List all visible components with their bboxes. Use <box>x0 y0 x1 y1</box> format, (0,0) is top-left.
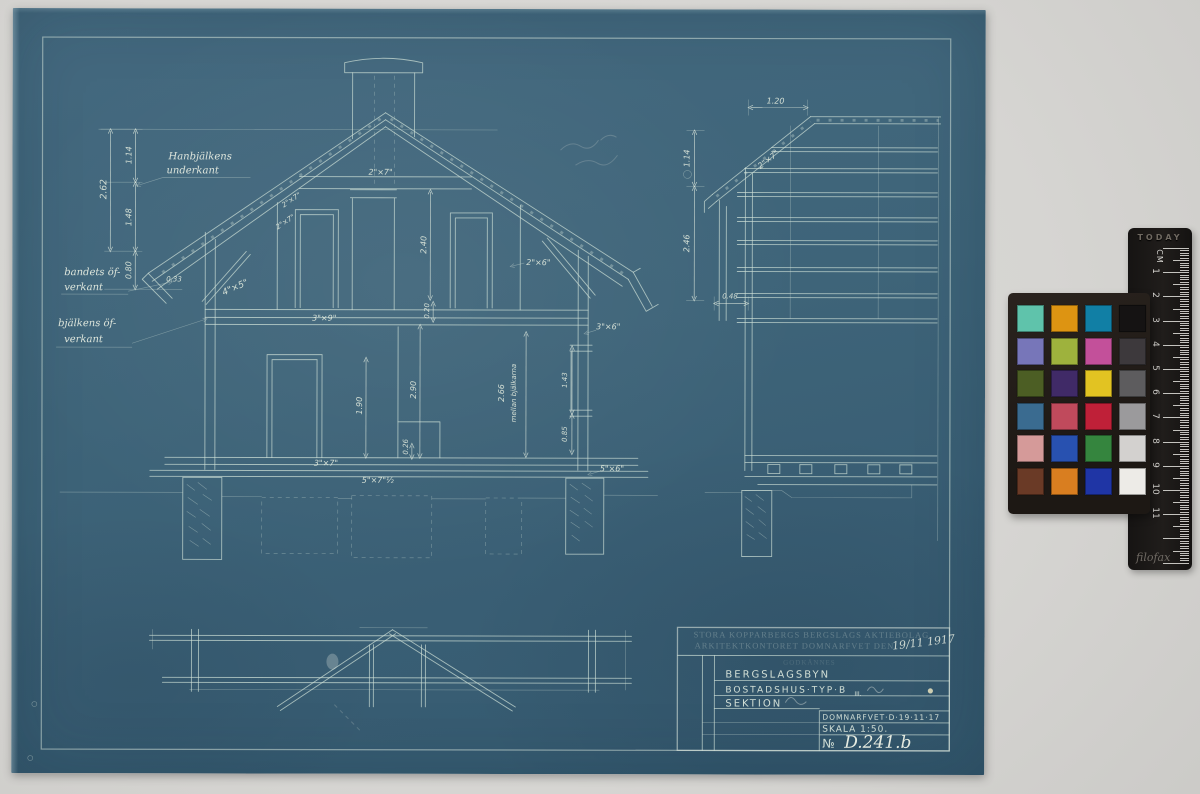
color-swatch <box>1051 468 1078 495</box>
ruler-tick <box>1163 272 1189 273</box>
title-building-sub: III. <box>854 691 861 698</box>
ruler-tick <box>1180 374 1189 375</box>
ruler-tick <box>1180 328 1189 329</box>
dim-120: 1.20 <box>767 97 785 106</box>
color-swatch <box>1051 305 1078 332</box>
ruler-tick <box>1163 393 1189 394</box>
ruler-tick <box>1163 296 1189 297</box>
ruler-tick <box>1180 330 1189 331</box>
color-swatch <box>1119 305 1146 332</box>
ruler-tick <box>1173 405 1189 406</box>
ruler-tick <box>1180 439 1189 440</box>
dim-262: 2.62 <box>99 179 109 199</box>
ruler-tick <box>1180 384 1189 385</box>
ruler-tick <box>1173 284 1189 285</box>
ruler-tick <box>1180 263 1189 264</box>
title-project: BERGSLAGSBYN <box>725 669 830 680</box>
ruler-tick <box>1173 502 1189 503</box>
ruler-number: 1 <box>1150 264 1160 278</box>
ruler-tick <box>1180 301 1189 302</box>
color-swatch <box>1119 468 1146 495</box>
ruler-tick <box>1180 354 1189 355</box>
ruler-script-logo: filofax <box>1136 551 1170 564</box>
ruler-tick <box>1180 500 1189 501</box>
ruler-number: 8 <box>1150 434 1160 448</box>
ruler-tick <box>1173 551 1189 552</box>
ruler-tick <box>1180 463 1189 464</box>
label-verkant-2: verkant <box>64 334 104 345</box>
ruler-tick <box>1180 400 1189 401</box>
ruler-tick <box>1180 529 1189 530</box>
ruler-tick <box>1180 313 1189 314</box>
ruler-tick <box>1180 475 1189 476</box>
ruler-tick <box>1180 497 1189 498</box>
dim-026: 0.26 <box>402 438 410 454</box>
dim-5x7: 5"×7"½ <box>362 476 394 485</box>
ruler-tick <box>1180 318 1189 319</box>
ruler-tick <box>1180 413 1189 414</box>
ruler-tick <box>1180 371 1189 372</box>
title-no-sign: № <box>822 737 836 751</box>
ruler-tick <box>1163 490 1189 491</box>
ruler-tick <box>1180 415 1189 416</box>
ruler-tick <box>1173 260 1189 261</box>
ruler-tick <box>1180 427 1189 428</box>
ruler-tick <box>1180 347 1189 348</box>
title-drawing-number: D.241.b <box>843 733 911 753</box>
ruler-tick <box>1180 483 1189 484</box>
ruler-tick <box>1180 396 1189 397</box>
dim-114-right: 1.14 <box>682 149 691 167</box>
ruler-tick <box>1163 248 1189 249</box>
color-swatch <box>1051 403 1078 430</box>
ruler-tick <box>1163 345 1189 346</box>
ruler-number: 2 <box>1150 288 1160 302</box>
ruler-tick <box>1173 526 1189 527</box>
ruler-tick <box>1180 388 1189 389</box>
ruler-tick <box>1180 408 1189 409</box>
ruler-tick <box>1180 524 1189 525</box>
label-bandets: bandets öf- <box>64 267 121 278</box>
ruler-tick <box>1180 485 1189 486</box>
ruler-tick <box>1173 381 1189 382</box>
ruler-tick <box>1180 461 1189 462</box>
ruler-tick <box>1180 531 1189 532</box>
dim-3x9: 3"×9" <box>312 314 336 323</box>
ruler-tick <box>1180 386 1189 387</box>
ruler-tick <box>1180 391 1189 392</box>
ruler-tick <box>1180 548 1189 549</box>
ruler-tick <box>1180 488 1189 489</box>
ruler-tick <box>1173 309 1189 310</box>
ruler-tick <box>1180 517 1189 518</box>
color-swatch <box>1017 403 1044 430</box>
dim-048: 0.48 <box>722 292 738 300</box>
ruler-number: 11 <box>1150 506 1160 520</box>
dim-080: 0.80 <box>124 261 133 279</box>
ruler-tick <box>1180 253 1189 254</box>
color-swatch <box>1017 338 1044 365</box>
ruler-tick <box>1180 512 1189 513</box>
ruler-number: 5 <box>1150 361 1160 375</box>
ruler-tick <box>1180 534 1189 535</box>
ruler-tick <box>1180 546 1189 547</box>
label-bjalkens: bjälkens öf- <box>58 318 117 329</box>
ruler-tick <box>1180 468 1189 469</box>
ruler-tick <box>1180 287 1189 288</box>
ruler-tick <box>1163 369 1189 370</box>
ruler-tick <box>1180 560 1189 561</box>
dim-mellan: mellan bjälkarna <box>510 364 518 423</box>
dim-2x7-right: 2"×7" <box>756 149 781 171</box>
color-swatch <box>1017 468 1044 495</box>
ruler-tick <box>1180 480 1189 481</box>
ruler-tick <box>1180 492 1189 493</box>
ruler-tick <box>1180 379 1189 380</box>
dim-2x6: 2"×6" <box>526 258 550 267</box>
color-swatch <box>1119 338 1146 365</box>
blueprint-sheet: 1.14 1.48 0.80 2.62 Hanbjälkens underkan… <box>11 8 986 775</box>
ruler-tick <box>1180 446 1189 447</box>
color-swatch <box>1085 435 1112 462</box>
ruler-tick <box>1180 422 1189 423</box>
dim-190: 1.90 <box>355 397 364 415</box>
ruler-tick <box>1180 449 1189 450</box>
color-chart-grid <box>1017 305 1146 495</box>
ruler-tick <box>1180 289 1189 290</box>
dim-085: 0.85 <box>561 426 569 442</box>
ruler-tick <box>1180 292 1189 293</box>
label-hanbjalkens: Hanbjälkens <box>167 151 231 162</box>
ruler-tick <box>1173 333 1189 334</box>
stamp-line-1: STORA KOPPARBERGS BERGSLAGS AKTIEBOLAG <box>694 629 930 639</box>
roof-plan-drawing <box>149 627 631 732</box>
dim-290: 2.90 <box>409 381 418 399</box>
ruler-tick <box>1180 299 1189 300</box>
color-swatch <box>1085 305 1112 332</box>
ruler-tick <box>1173 357 1189 358</box>
title-place-date: DOMNARFVET·D·19·11·17 <box>822 713 940 722</box>
color-swatch <box>1119 435 1146 462</box>
dim-020: 0.20 <box>423 303 431 319</box>
ruler-number: 3 <box>1150 313 1160 327</box>
ruler-tick <box>1180 434 1189 435</box>
ruler-tick <box>1180 456 1189 457</box>
ruler-tick <box>1180 306 1189 307</box>
color-swatch <box>1017 435 1044 462</box>
ruler-tick <box>1180 507 1189 508</box>
ruler-tick <box>1180 323 1189 324</box>
ruler-tick <box>1180 335 1189 336</box>
ruler-tick <box>1180 277 1189 278</box>
stamp-line-2: ARKITEKTKONTORET DOMNARFVET DEN <box>695 640 895 650</box>
ruler-tick <box>1163 514 1189 515</box>
ruler-tick <box>1173 478 1189 479</box>
dim-240: 2.40 <box>419 236 428 254</box>
color-swatch <box>1051 370 1078 397</box>
ruler-number: 7 <box>1150 409 1160 423</box>
ruler-tick <box>1163 417 1189 418</box>
ruler-tick <box>1180 279 1189 280</box>
ruler-tick <box>1163 321 1189 322</box>
ruler-tick <box>1180 325 1189 326</box>
color-swatch <box>1085 370 1112 397</box>
label-underkant: underkant <box>166 165 219 176</box>
title-drawing: SEKTION <box>725 698 782 709</box>
ruler-tick <box>1180 282 1189 283</box>
ruler-tick <box>1180 521 1189 522</box>
ruler-tick <box>1180 555 1189 556</box>
label-verkant-1: verkant <box>64 282 104 293</box>
color-swatch <box>1017 305 1044 332</box>
ruler-tick <box>1180 536 1189 537</box>
dim-2x7-collar: 2"×7" <box>368 168 392 177</box>
ruler-tick <box>1180 473 1189 474</box>
dim-266: 2.66 <box>497 384 506 402</box>
ruler-tick <box>1180 311 1189 312</box>
ruler-tick <box>1180 258 1189 259</box>
ruler-tick <box>1180 444 1189 445</box>
ruler-tick <box>1180 420 1189 421</box>
ruler-tick <box>1180 543 1189 544</box>
dim-3x7: 3"×7" <box>314 459 338 468</box>
ruler-tick <box>1180 267 1189 268</box>
ruler-tick <box>1180 541 1189 542</box>
color-swatch <box>1017 370 1044 397</box>
ruler-tick <box>1180 364 1189 365</box>
ruler-number: 9 <box>1150 458 1160 472</box>
color-swatch <box>1051 338 1078 365</box>
ruler-number: 10 <box>1150 482 1160 496</box>
ruler-tick <box>1180 471 1189 472</box>
dim-5x6: 5"×6" <box>600 464 624 473</box>
dim-143: 1.43 <box>561 372 569 388</box>
ruler-tick <box>1180 362 1189 363</box>
ruler-tick <box>1180 342 1189 343</box>
dim-148: 1.48 <box>124 208 133 226</box>
pencil-notes <box>560 135 617 165</box>
ruler-tick <box>1180 376 1189 377</box>
ruler-tick <box>1180 350 1189 351</box>
ruler-tick <box>1163 538 1189 539</box>
ruler-tick <box>1180 294 1189 295</box>
ruler-tick <box>1180 509 1189 510</box>
color-swatch <box>1119 403 1146 430</box>
main-section-drawing: 1.14 1.48 0.80 2.62 Hanbjälkens underkan… <box>56 58 659 561</box>
ruler-tick <box>1180 367 1189 368</box>
ruler-number: 6 <box>1150 385 1160 399</box>
ruler-tick <box>1180 275 1189 276</box>
color-swatch <box>1085 403 1112 430</box>
color-swatch <box>1119 370 1146 397</box>
ruler-tick <box>1180 519 1189 520</box>
color-swatch <box>1085 338 1112 365</box>
ruler-tick <box>1180 495 1189 496</box>
dim-033: 0.33 <box>166 275 182 283</box>
blueprint-drawing: 1.14 1.48 0.80 2.62 Hanbjälkens underkan… <box>11 8 986 775</box>
ruler-tick <box>1180 340 1189 341</box>
ruler-tick <box>1180 316 1189 317</box>
ruler-tick <box>1173 430 1189 431</box>
ruler-tick <box>1180 403 1189 404</box>
ruler-tick <box>1163 466 1189 467</box>
photo-backdrop: 1.14 1.48 0.80 2.62 Hanbjälkens underkan… <box>0 0 1200 794</box>
title-block: STORA KOPPARBERGS BERGSLAGS AKTIEBOLAG A… <box>677 627 955 753</box>
ruler-tick <box>1180 558 1189 559</box>
ruler-tick <box>1180 265 1189 266</box>
stamp-approval: GODKÄNNES <box>783 659 836 667</box>
color-swatch <box>1051 435 1078 462</box>
dim-4x5: 4"×5" <box>221 278 250 298</box>
ruler-tick <box>1180 270 1189 271</box>
ruler-tick <box>1180 250 1189 251</box>
dim-114: 1.14 <box>124 146 133 164</box>
dim-3x6: 3"×6" <box>596 322 620 331</box>
ruler-brand: TODAY <box>1128 233 1192 242</box>
color-calibration-card <box>1008 293 1150 514</box>
ruler-tick <box>1180 410 1189 411</box>
ruler-unit-label: CM <box>1155 249 1164 264</box>
ruler-tick <box>1163 442 1189 443</box>
ruler-tick <box>1180 432 1189 433</box>
ruler-tick <box>1180 437 1189 438</box>
ruler-tick <box>1173 454 1189 455</box>
ruler-tick <box>1180 398 1189 399</box>
ruler-tick <box>1180 304 1189 305</box>
ruler-tick <box>1180 505 1189 506</box>
ruler-tick <box>1180 425 1189 426</box>
ruler-number: 4 <box>1150 337 1160 351</box>
sheet-border <box>28 37 951 762</box>
ruler-tick <box>1180 553 1189 554</box>
ruler-tick <box>1180 255 1189 256</box>
ruler-tick <box>1180 352 1189 353</box>
ruler-tick <box>1180 451 1189 452</box>
dim-246: 2.46 <box>682 234 691 252</box>
side-section-drawing: 1.20 1.14 2.46 0.48 2"×7" <box>682 96 941 557</box>
ruler-tick <box>1180 359 1189 360</box>
ruler-tick <box>1180 338 1189 339</box>
ruler-tick <box>1180 459 1189 460</box>
title-building: BOSTADSHUS·TYP·B <box>725 685 847 695</box>
color-swatch <box>1085 468 1112 495</box>
